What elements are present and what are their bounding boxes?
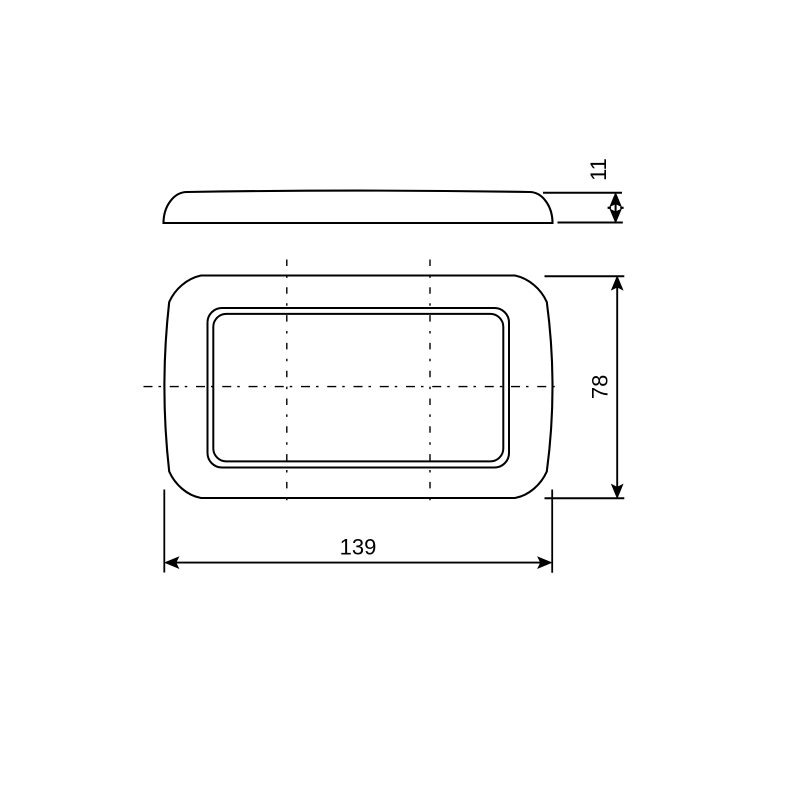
svg-text:11: 11 [586,158,611,181]
svg-text:78: 78 [587,375,612,399]
svg-text:139: 139 [340,535,377,560]
